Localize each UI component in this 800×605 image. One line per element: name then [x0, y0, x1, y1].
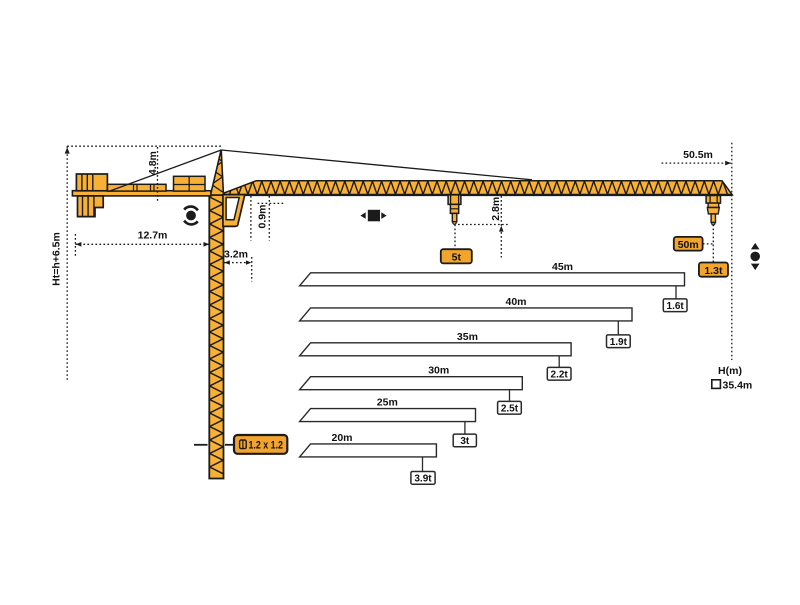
svg-text:50m: 50m	[678, 239, 699, 251]
svg-text:4.8m: 4.8m	[147, 151, 159, 175]
svg-text:2.8m: 2.8m	[490, 197, 502, 221]
svg-text:5t: 5t	[452, 252, 462, 264]
svg-text:Ht=h+6.5m: Ht=h+6.5m	[51, 232, 63, 286]
svg-text:2.5t: 2.5t	[501, 403, 519, 414]
svg-text:1.6t: 1.6t	[667, 301, 685, 312]
svg-text:1.9t: 1.9t	[610, 337, 628, 348]
svg-text:40m: 40m	[505, 296, 526, 308]
svg-text:0.9m: 0.9m	[256, 205, 268, 229]
svg-text:30m: 30m	[428, 365, 449, 377]
svg-text:20m: 20m	[331, 432, 352, 444]
svg-text:12.7m: 12.7m	[138, 230, 168, 242]
svg-text:45m: 45m	[552, 261, 573, 273]
svg-text:1.2 x 1.2: 1.2 x 1.2	[249, 440, 284, 452]
svg-text:25m: 25m	[377, 397, 398, 409]
svg-text:35m: 35m	[457, 331, 478, 343]
svg-text:1.3t: 1.3t	[704, 265, 723, 277]
svg-text:3t: 3t	[460, 436, 470, 447]
svg-text:2.2t: 2.2t	[551, 369, 569, 380]
svg-text:50.5m: 50.5m	[683, 149, 713, 161]
svg-text:3.2m: 3.2m	[224, 249, 248, 261]
svg-text:H(m): H(m)	[718, 365, 742, 377]
svg-text:3.9t: 3.9t	[414, 474, 432, 485]
svg-text:35.4m: 35.4m	[723, 379, 753, 391]
